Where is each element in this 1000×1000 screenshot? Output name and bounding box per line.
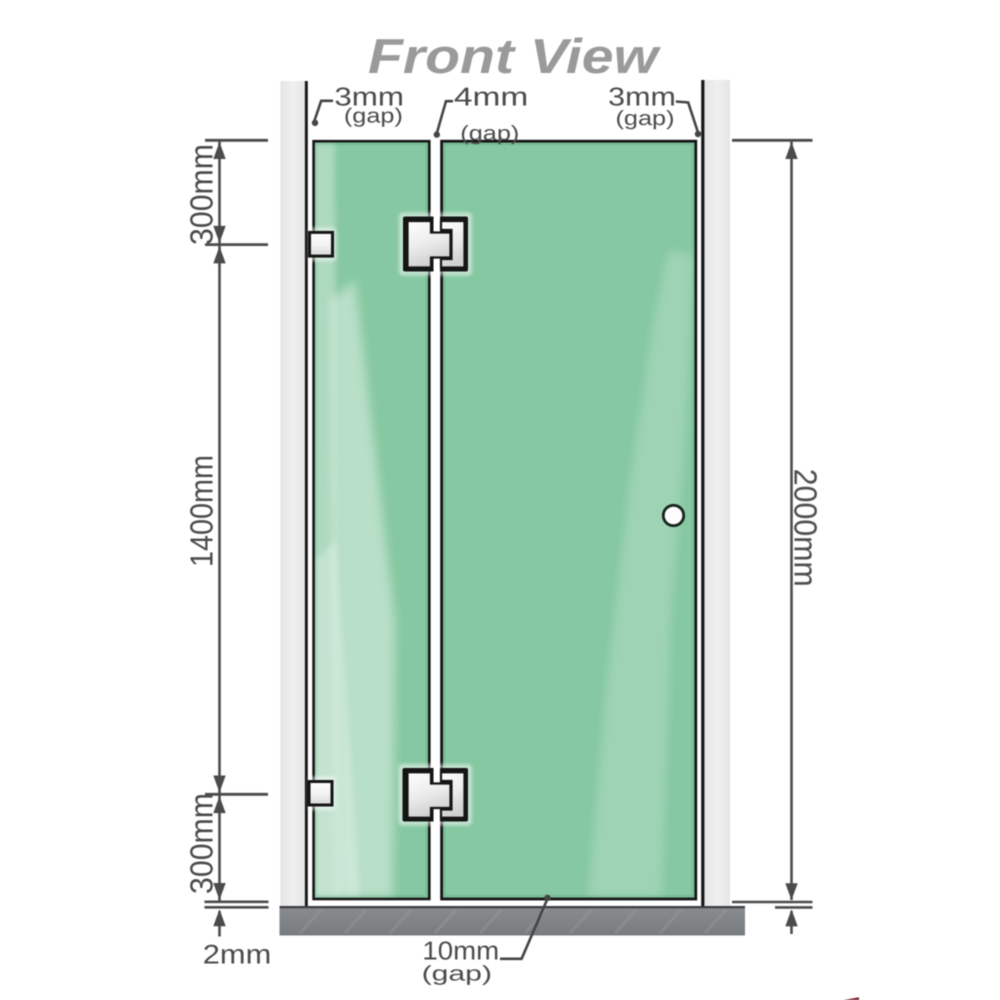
svg-text:1400mm: 1400mm	[184, 455, 220, 567]
svg-text:(gap): (gap)	[344, 105, 403, 128]
svg-text:4mm: 4mm	[454, 82, 528, 112]
svg-text:(gap): (gap)	[460, 122, 519, 145]
svg-text:Front View: Front View	[368, 30, 661, 84]
svg-text:300mm: 300mm	[184, 144, 220, 245]
svg-text:(gap): (gap)	[422, 963, 492, 986]
svg-text:2000mm: 2000mm	[788, 469, 824, 587]
svg-text:2mm: 2mm	[203, 940, 272, 970]
svg-text:10mm: 10mm	[422, 936, 499, 966]
svg-text:(gap): (gap)	[616, 107, 675, 130]
svg-text:300mm: 300mm	[184, 793, 220, 894]
